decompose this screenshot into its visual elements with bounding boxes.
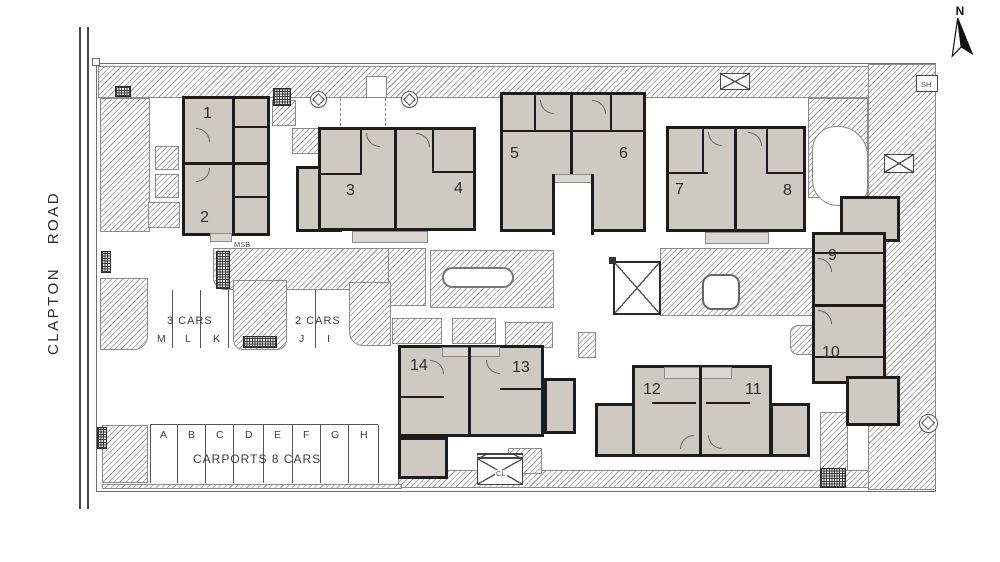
interior-wall — [400, 396, 444, 398]
unit-label-11: 11 — [745, 382, 762, 398]
utility-pad — [101, 251, 111, 273]
stall-letter: D — [245, 430, 253, 441]
north-arrow-icon — [944, 15, 977, 58]
entry-stoop — [210, 233, 232, 242]
bench-icon — [720, 73, 750, 90]
interior-wall — [432, 171, 474, 173]
planter — [442, 267, 514, 288]
interior-wall — [232, 98, 235, 234]
stall-divider — [228, 290, 229, 348]
unit-label-13: 13 — [512, 360, 530, 376]
tree-icon — [401, 91, 418, 108]
building-11-12-wing-left — [595, 403, 635, 457]
hatch-area — [820, 412, 848, 474]
hatch-area — [578, 332, 596, 358]
interior-wall — [734, 128, 737, 230]
stall-letter: M — [157, 334, 166, 345]
stall-letter: L — [185, 334, 191, 345]
unit-label-7: 7 — [675, 182, 684, 198]
easement-line — [340, 98, 341, 126]
interior-wall — [500, 388, 542, 390]
utility-pad — [273, 88, 291, 106]
building-3-4 — [318, 127, 476, 231]
hatch-area — [100, 278, 148, 350]
utility-pad — [243, 336, 277, 348]
stall-letter: K — [213, 334, 220, 345]
hatch-area — [392, 318, 442, 344]
entry-stoop — [664, 367, 732, 379]
stall-letter: A — [160, 430, 167, 441]
interior-wall — [570, 94, 573, 174]
interior-wall — [610, 94, 612, 130]
unit-label-14: 14 — [410, 358, 428, 374]
tree-icon — [310, 91, 327, 108]
msb-label: MSB — [234, 241, 250, 249]
stall-divider — [177, 425, 178, 483]
stall-letter: H — [360, 430, 368, 441]
interior-wall — [184, 162, 268, 165]
clothesline-box: CL — [477, 453, 523, 485]
road-edge-line — [79, 27, 81, 509]
entry-stoop — [705, 232, 769, 244]
building-13-14-right — [544, 378, 576, 434]
interior-wall — [468, 347, 471, 435]
unit-label-8: 8 — [783, 183, 792, 199]
interior-wall — [814, 304, 884, 307]
interior-wall — [668, 172, 708, 174]
interior-wall — [766, 128, 768, 172]
shed-label: SH — [921, 81, 931, 89]
unit-label-6: 6 — [619, 146, 628, 162]
stall-divider — [348, 425, 349, 483]
interior-wall — [502, 130, 644, 132]
utility-pad — [820, 468, 846, 488]
utility-pad — [97, 427, 107, 449]
bench-icon — [884, 154, 914, 173]
stall-letter: G — [331, 430, 339, 441]
carport-roof-line — [150, 424, 378, 425]
unit-label-12: 12 — [643, 382, 661, 398]
entry-stoop — [442, 347, 500, 357]
hatch-area — [102, 425, 148, 483]
stall-letter: J — [299, 334, 304, 345]
hatch-area — [102, 484, 402, 489]
hatch-area — [388, 248, 426, 306]
interior-wall — [432, 129, 434, 173]
utility-pad — [115, 86, 131, 97]
clothesline-label: CL — [495, 470, 507, 478]
stall-divider — [150, 425, 151, 483]
unit-label-3: 3 — [346, 183, 355, 199]
building-9-10 — [812, 232, 886, 384]
unit-label-4: 4 — [454, 181, 463, 197]
interior-wall — [234, 126, 268, 128]
stall-letter: E — [274, 430, 281, 441]
parking-title: 2 CARS — [295, 316, 341, 327]
road-label: CLAPTON ROAD — [45, 113, 65, 433]
interior-wall — [766, 172, 804, 174]
boundary-marker — [92, 58, 100, 66]
unit-label-2: 2 — [200, 210, 209, 226]
hatch-area — [349, 282, 391, 346]
walkway-notch — [552, 174, 594, 235]
interior-wall — [702, 128, 704, 172]
stall-divider — [378, 425, 379, 483]
unit-label-10: 10 — [822, 345, 840, 361]
easement-line — [385, 98, 386, 126]
site-plan: CLAPTON ROAD N SH — [0, 0, 1000, 562]
entry-stoop — [352, 231, 428, 243]
parking-title: 3 CARS — [167, 316, 213, 327]
parking-title: CARPORTS 8 CARS — [193, 453, 321, 465]
interior-wall — [699, 367, 702, 455]
utility-pad — [216, 251, 230, 289]
interior-wall — [394, 129, 397, 229]
tree-icon — [919, 414, 938, 433]
shed-box: SH — [916, 75, 938, 92]
gazebo — [613, 261, 661, 315]
interior-wall — [360, 129, 362, 175]
unit-label-1: 1 — [203, 106, 212, 122]
hatch-area — [398, 470, 870, 488]
road-edge-line — [87, 27, 89, 509]
unit-label-9: 9 — [828, 248, 837, 264]
stall-letter: I — [327, 334, 330, 345]
gazebo-corner — [609, 257, 616, 264]
hatch-area — [155, 146, 179, 170]
garden-path — [812, 126, 868, 206]
stall-letter: F — [303, 430, 309, 441]
interior-wall — [706, 402, 750, 404]
interior-wall — [534, 94, 536, 130]
building-9-10-bottom — [846, 376, 900, 426]
interior-wall — [234, 196, 268, 198]
interior-wall — [320, 173, 360, 175]
building-13-14-wing-low — [398, 437, 448, 479]
interior-wall — [814, 252, 884, 254]
interior-wall — [652, 402, 696, 404]
building-11-12-wing-right — [770, 403, 810, 457]
hatch-area — [155, 174, 179, 198]
gate-notch — [366, 76, 387, 98]
hatch-area — [452, 318, 496, 344]
stall-letter: C — [216, 430, 224, 441]
tree-canopy — [702, 274, 740, 310]
building-1-2 — [182, 96, 270, 236]
stall-letter: B — [188, 430, 195, 441]
hatch-area — [100, 98, 150, 232]
unit-label-5: 5 — [510, 146, 519, 162]
hatch-area — [148, 202, 180, 228]
